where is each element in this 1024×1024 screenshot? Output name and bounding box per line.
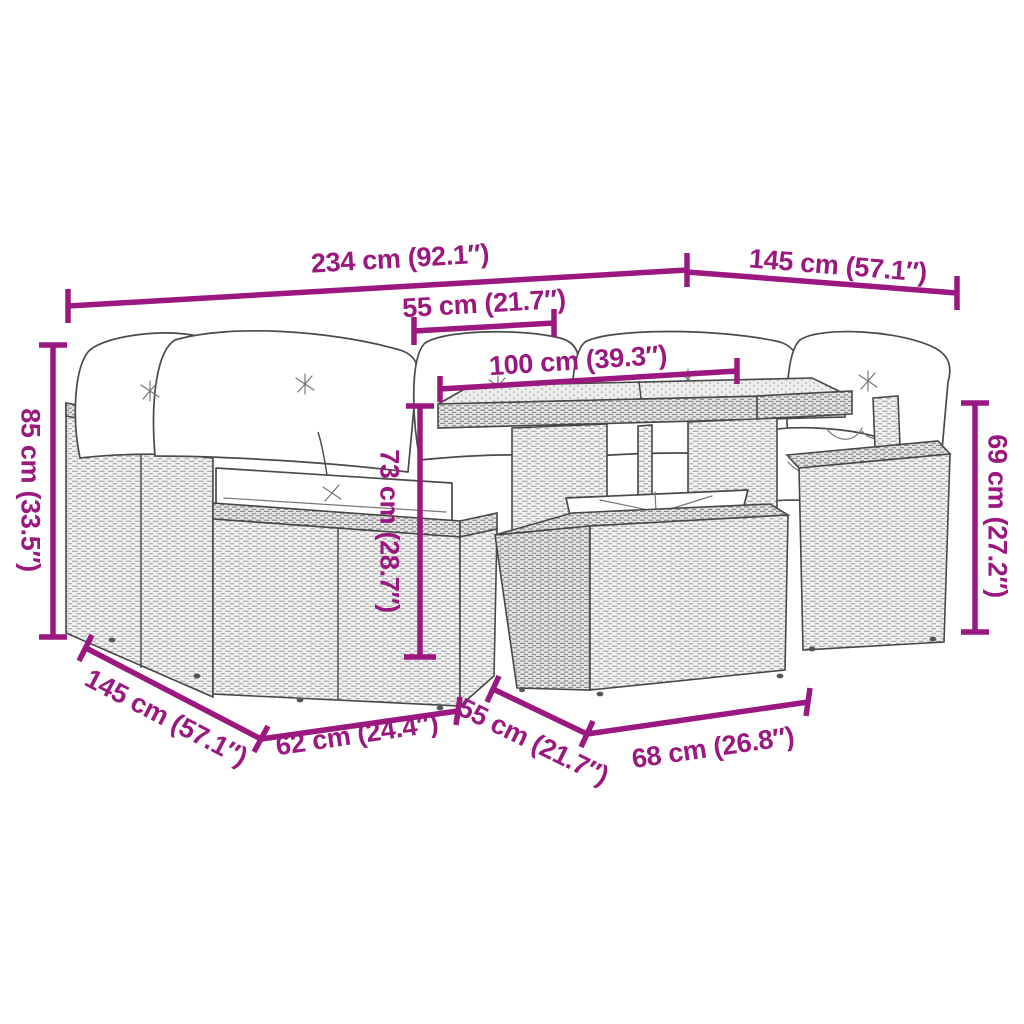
dim-label-side-unit-height: 69 cm (27.2″) <box>984 434 1011 598</box>
dim-label-backrest-height: 85 cm (33.5″) <box>17 408 44 572</box>
dim-label-table-height: 73 cm (28.7″) <box>376 449 403 613</box>
dim-line-table-height <box>404 406 436 657</box>
dimension-lines <box>0 0 1024 1024</box>
dimension-diagram: 234 cm (92.1″) 145 cm (57.1″) 55 cm (21.… <box>0 0 1024 1024</box>
